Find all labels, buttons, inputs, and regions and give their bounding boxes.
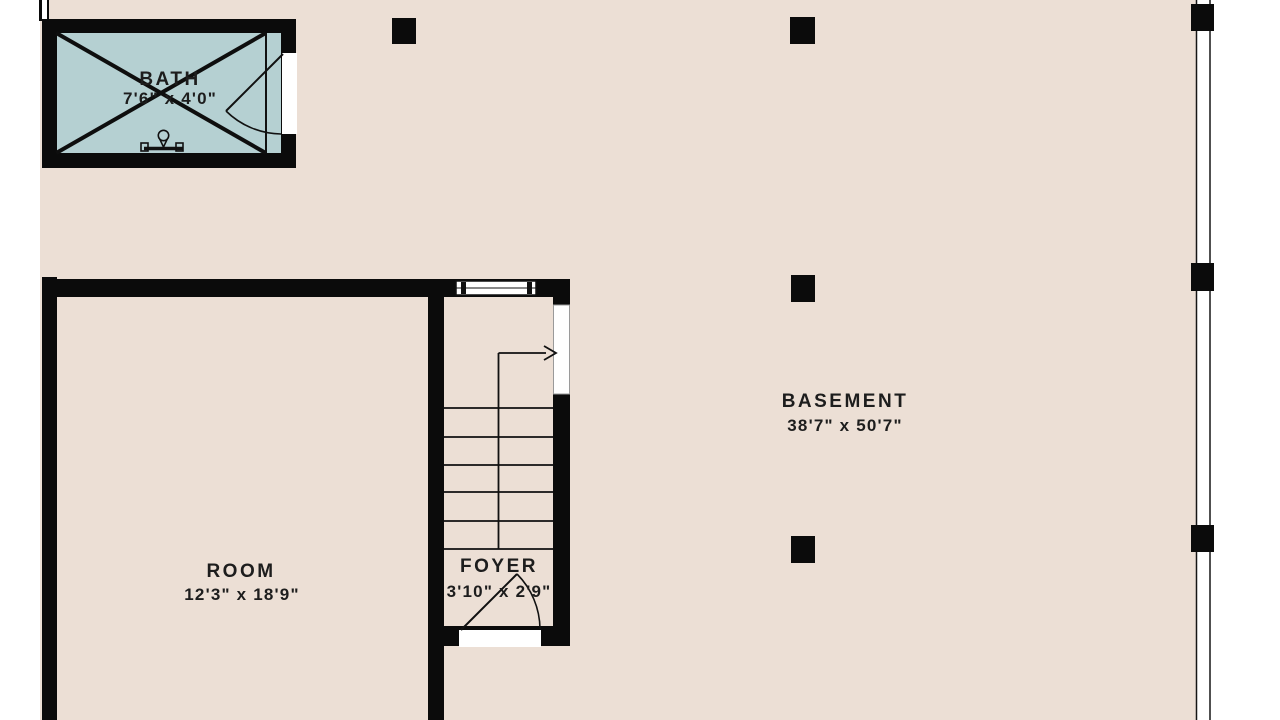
basement-dimensions: 38'7" x 50'7" bbox=[787, 416, 902, 435]
stair-left-wall bbox=[428, 279, 444, 720]
stair-top-window bbox=[456, 281, 536, 295]
window-mullion bbox=[461, 282, 466, 294]
bath-door-opening bbox=[282, 53, 297, 134]
right-exterior bbox=[1196, 0, 1280, 720]
stair-side-window bbox=[554, 305, 570, 394]
room-label: ROOM bbox=[206, 561, 275, 582]
room-dimensions: 12'3" x 18'9" bbox=[184, 585, 299, 604]
basement-label: BASEMENT bbox=[782, 391, 909, 412]
wall-stub-line bbox=[39, 0, 42, 21]
wall-post bbox=[1191, 263, 1214, 291]
bath-label: BATH bbox=[139, 69, 200, 90]
right-window-wall bbox=[1191, 0, 1280, 720]
floor-plan-page: BATH 7'6" x 4'0" ROOM 12'3" x 18'9" FOYE… bbox=[0, 0, 1280, 720]
wall-post bbox=[1191, 525, 1214, 552]
foyer-door-opening bbox=[459, 630, 541, 647]
foyer-label: FOYER bbox=[460, 556, 538, 577]
room-left-wall bbox=[42, 277, 57, 720]
wall-stub-line bbox=[47, 0, 49, 21]
bath-dimensions: 7'6" x 4'0" bbox=[123, 89, 217, 108]
column bbox=[791, 536, 815, 563]
column bbox=[791, 275, 815, 302]
column bbox=[790, 17, 815, 44]
foyer-dimensions: 3'10" x 2'9" bbox=[447, 582, 552, 601]
window-mullion bbox=[527, 282, 532, 294]
top-left-wall-stub bbox=[39, 0, 49, 21]
column bbox=[392, 18, 416, 44]
floor-plan-drawing: BATH 7'6" x 4'0" ROOM 12'3" x 18'9" FOYE… bbox=[0, 0, 1280, 720]
wall-post bbox=[1191, 4, 1214, 31]
